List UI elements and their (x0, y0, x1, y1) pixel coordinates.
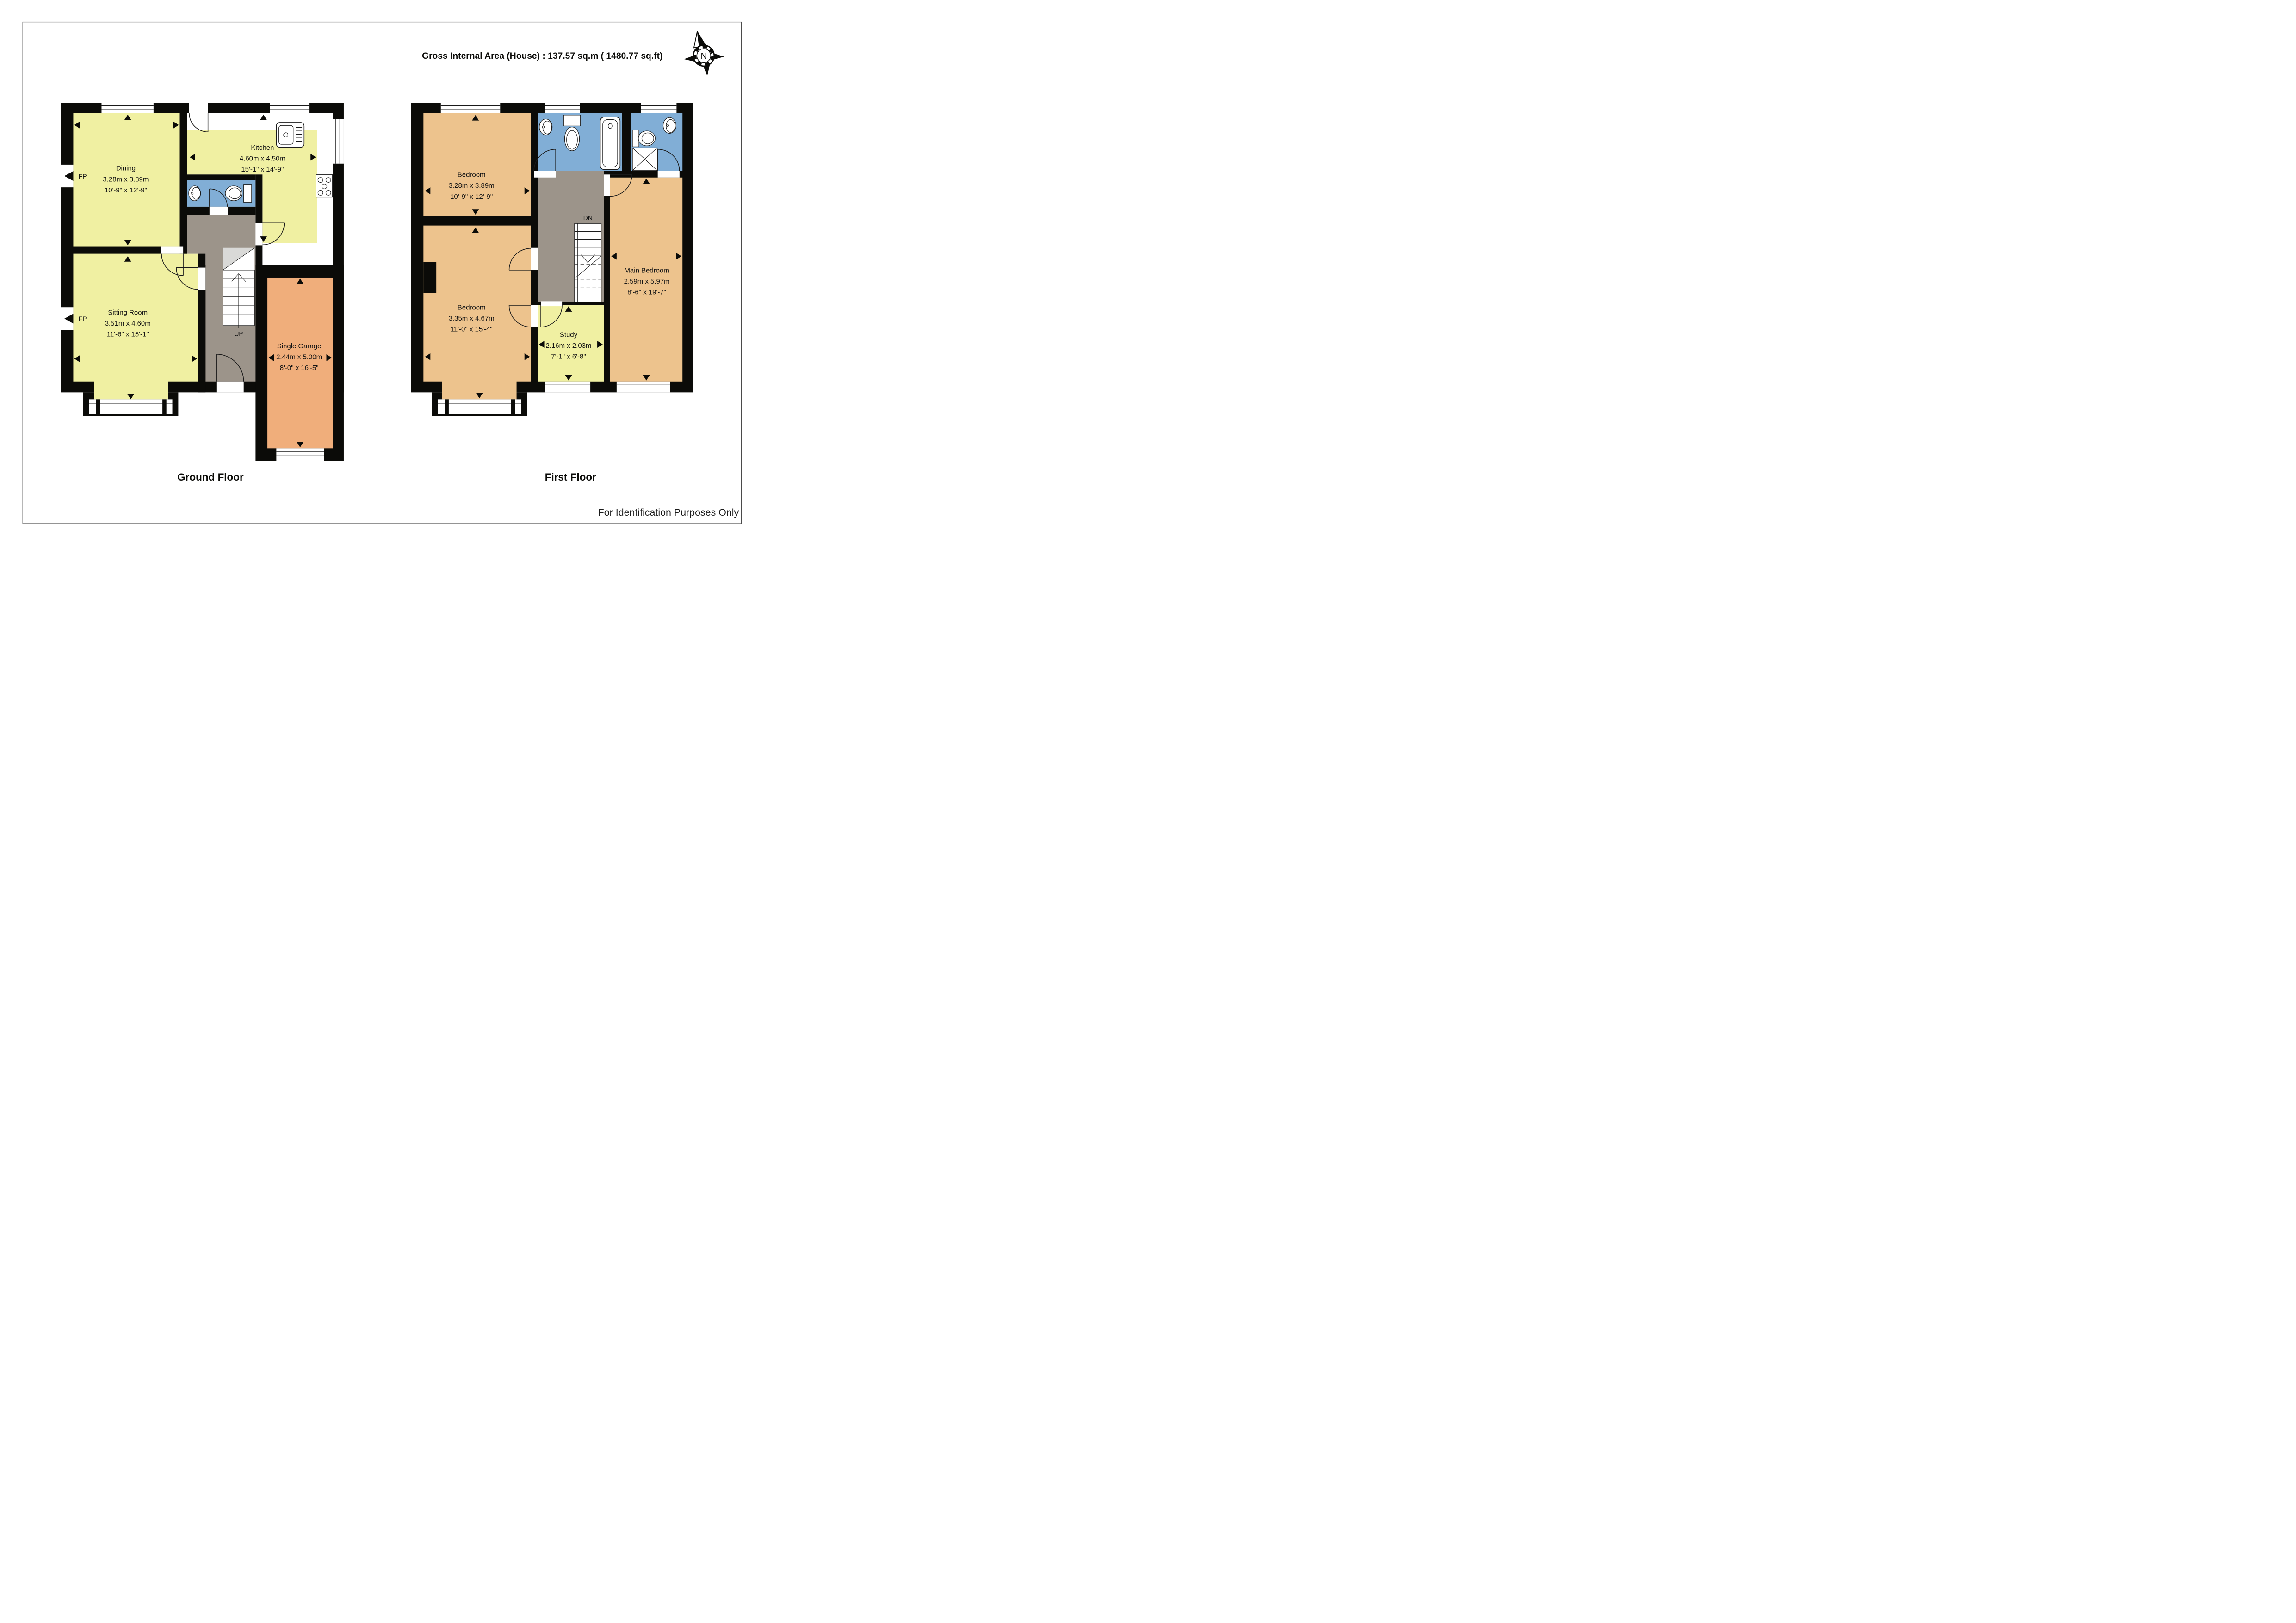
main-bedroom-door-opening (604, 174, 610, 196)
svg-text:2.44m x 5.00m: 2.44m x 5.00m (276, 353, 322, 361)
bay-window (438, 399, 521, 416)
compass-north-label: N (701, 51, 707, 61)
svg-text:8'-6" x 19'-7": 8'-6" x 19'-7" (627, 288, 666, 296)
shower-toilet-icon (632, 130, 655, 147)
svg-text:3.35m x 4.67m: 3.35m x 4.67m (449, 315, 495, 322)
bedroom2-door-opening (531, 305, 538, 327)
svg-text:3.28m x 3.89m: 3.28m x 3.89m (449, 182, 495, 190)
ground-floor-title: Ground Floor (177, 471, 244, 483)
room-label-sitting: Sitting Room 3.51m x 4.60m 11'-6" x 15'-… (105, 309, 151, 338)
fireplace-label: FP (79, 173, 87, 180)
floorplan-canvas: Gross Internal Area (House) : 137.57 sq.… (0, 0, 765, 541)
chimney-breast (423, 262, 436, 293)
svg-text:Bedroom: Bedroom (458, 171, 486, 179)
shower-room-door-opening (658, 171, 680, 178)
kitchen-door-opening (255, 223, 262, 245)
front-door-opening (217, 382, 244, 393)
svg-text:8'-0" x 16'-5": 8'-0" x 16'-5" (280, 364, 319, 372)
wall-dining-kitchen (180, 113, 187, 254)
svg-text:4.60m x 4.50m: 4.60m x 4.50m (240, 154, 285, 162)
svg-text:Single Garage: Single Garage (277, 342, 322, 350)
svg-text:Dining: Dining (116, 165, 136, 173)
stairs-down-label: DN (583, 214, 593, 222)
dining-door-opening (161, 247, 183, 254)
svg-text:Kitchen: Kitchen (251, 144, 274, 152)
sitting-door-opening (198, 268, 205, 290)
garage-door (276, 448, 324, 461)
svg-text:Main Bedroom: Main Bedroom (624, 266, 669, 274)
wc-toilet-icon (225, 185, 252, 203)
svg-text:3.51m x 4.60m: 3.51m x 4.60m (105, 320, 151, 327)
bathtub-icon (600, 117, 620, 169)
disclaimer-text: For Identification Purposes Only (598, 507, 739, 518)
bathroom-toilet-icon (563, 115, 580, 151)
stairs-up: UP (223, 248, 255, 338)
first-floor-plan: DN (411, 103, 693, 416)
svg-text:11'-6" x 15'-1": 11'-6" x 15'-1" (107, 330, 149, 338)
fireplace-label: FP (79, 315, 87, 322)
room-bedroom2 (423, 226, 531, 400)
bathroom-door-opening (534, 171, 556, 178)
ground-floor-plan: UP (61, 103, 344, 461)
compass-icon: N (684, 31, 724, 76)
svg-text:2.16m x 2.03m: 2.16m x 2.03m (545, 342, 591, 350)
svg-text:3.28m x 3.89m: 3.28m x 3.89m (103, 175, 149, 183)
svg-text:10'-9" x 12'-9": 10'-9" x 12'-9" (105, 186, 147, 194)
svg-text:Bedroom: Bedroom (458, 304, 486, 312)
svg-text:11'-0" x 15'-4": 11'-0" x 15'-4" (451, 326, 493, 333)
floorplan-page: Gross Internal Area (House) : 137.57 sq.… (0, 0, 765, 541)
svg-text:2.59m x 5.97m: 2.59m x 5.97m (624, 278, 670, 285)
wc-sink-icon (189, 186, 201, 201)
study-door-opening (541, 301, 562, 306)
svg-text:Study: Study (560, 331, 578, 339)
gross-area-text: Gross Internal Area (House) : 137.57 sq.… (422, 51, 662, 61)
shower-tray-icon (632, 148, 657, 171)
stairs-up-label: UP (234, 330, 243, 337)
wall-hall-kitchen (255, 174, 262, 265)
svg-text:15'-1" x 14'-9": 15'-1" x 14'-9" (241, 166, 284, 173)
stairs-down: DN (575, 214, 601, 302)
room-label-garage: Single Garage 2.44m x 5.00m 8'-0" x 16'-… (276, 342, 322, 372)
room-garage (267, 278, 333, 448)
bedroom1-door-opening (531, 248, 538, 270)
svg-text:7'-1" x 6'-8": 7'-1" x 6'-8" (551, 353, 586, 361)
wall-wc-top (187, 174, 256, 180)
first-floor-title: First Floor (545, 471, 596, 483)
bay-window (89, 399, 173, 416)
room-label-main-bedroom: Main Bedroom 2.59m x 5.97m 8'-6" x 19'-7… (624, 266, 670, 296)
svg-text:10'-9" x 12'-9": 10'-9" x 12'-9" (450, 193, 493, 201)
kitchen-sink-icon (276, 123, 304, 148)
svg-text:Sitting Room: Sitting Room (108, 309, 148, 316)
bathroom-sink-icon (539, 119, 552, 135)
hob-icon (316, 174, 332, 197)
shower-sink-icon (663, 117, 676, 133)
back-door-opening (189, 103, 208, 113)
wc-door-opening (210, 207, 228, 215)
